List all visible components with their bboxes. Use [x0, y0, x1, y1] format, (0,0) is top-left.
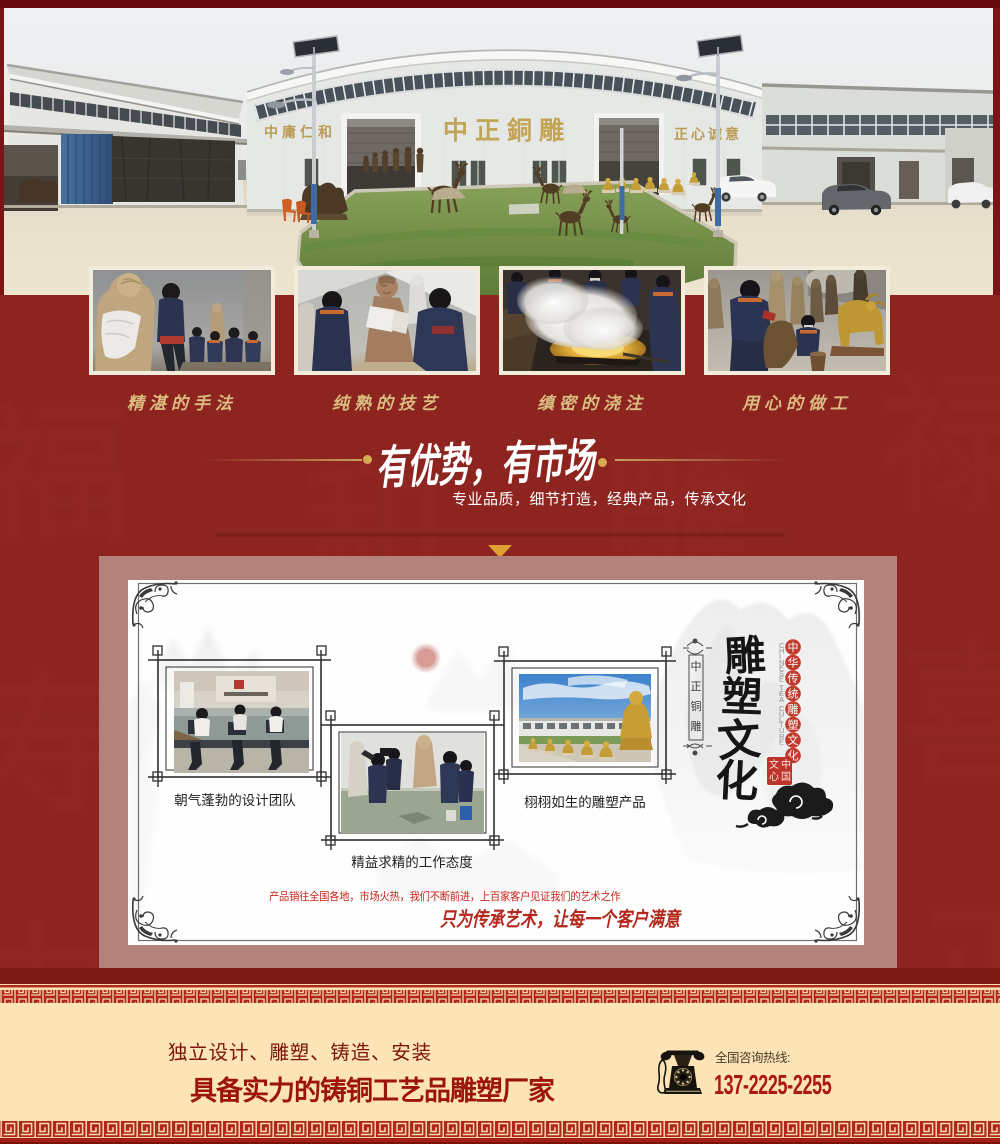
- svg-text:塑: 塑: [788, 718, 799, 732]
- svg-text:中: 中: [788, 641, 799, 654]
- svg-text:华: 华: [788, 656, 799, 670]
- svg-text:正: 正: [691, 681, 702, 693]
- svg-text:中庸仁和: 中庸仁和: [264, 124, 336, 140]
- svg-text:塑: 塑: [721, 673, 764, 720]
- svg-text:文: 文: [788, 733, 799, 747]
- svg-text:国: 国: [781, 771, 791, 783]
- svg-text:统: 统: [788, 688, 799, 701]
- svg-text:化: 化: [714, 757, 759, 807]
- svg-text:中: 中: [781, 758, 791, 771]
- svg-text:文: 文: [769, 758, 779, 771]
- svg-text:铜: 铜: [691, 699, 702, 713]
- svg-text:正心诚意: 正心诚意: [674, 126, 742, 142]
- svg-text:心: 心: [769, 771, 779, 783]
- svg-text:中正銅雕: 中正銅雕: [443, 116, 571, 145]
- svg-text:传: 传: [788, 672, 799, 685]
- svg-text:雕: 雕: [788, 702, 799, 716]
- svg-text:雕: 雕: [691, 719, 702, 733]
- svg-text:中: 中: [691, 660, 702, 673]
